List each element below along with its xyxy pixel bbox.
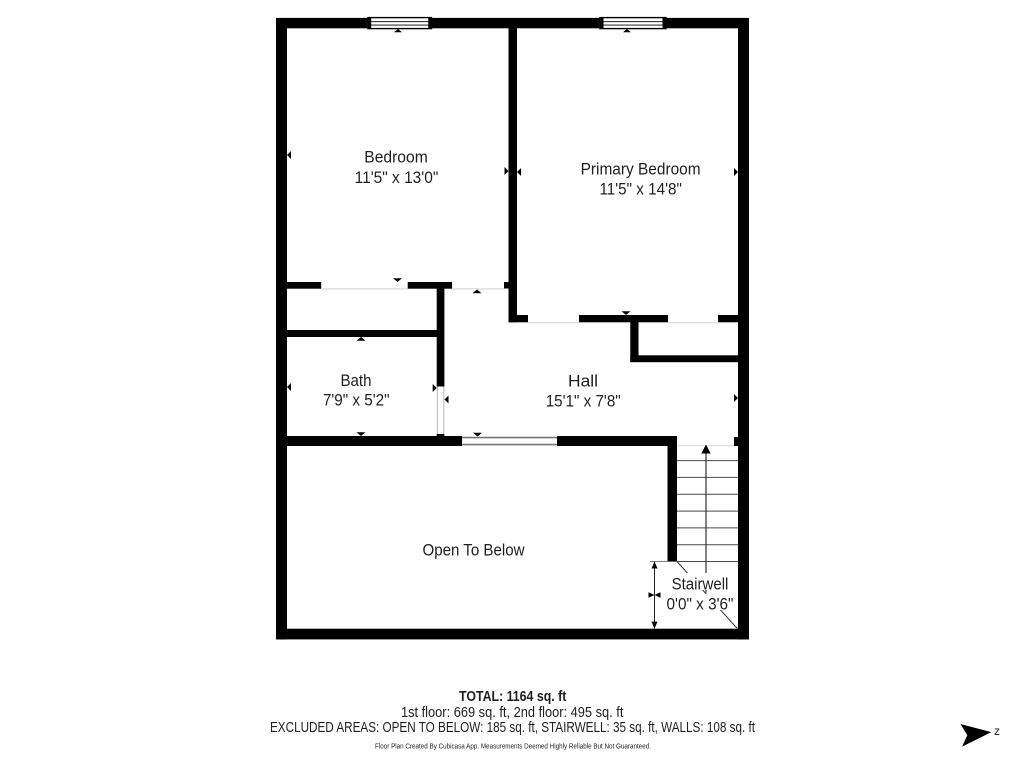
svg-text:11'5" x 13'0": 11'5" x 13'0" [355,169,439,187]
svg-text:Primary Bedroom: Primary Bedroom [581,161,701,179]
svg-text:z: z [994,724,1000,738]
svg-text:Open To Below: Open To Below [423,542,525,560]
svg-text:0'0" x 3'6": 0'0" x 3'6" [667,596,734,614]
svg-text:Bath: Bath [341,372,372,390]
svg-text:1st floor: 669 sq. ft, 2nd flo: 1st floor: 669 sq. ft, 2nd floor: 495 sq… [401,705,624,721]
svg-text:TOTAL: 1164 sq. ft: TOTAL: 1164 sq. ft [459,689,566,705]
svg-text:Stairwell: Stairwell [672,576,729,594]
svg-text:11'5" x 14'8": 11'5" x 14'8" [599,181,682,199]
svg-text:EXCLUDED AREAS: OPEN TO BELOW:: EXCLUDED AREAS: OPEN TO BELOW: 185 sq. f… [270,720,755,736]
svg-text:15'1" x 7'8": 15'1" x 7'8" [546,393,621,411]
svg-text:Hall: Hall [568,373,598,391]
svg-text:Floor Plan Created By Cubicasa: Floor Plan Created By Cubicasa App. Meas… [375,744,651,751]
svg-text:Bedroom: Bedroom [364,149,428,167]
svg-text:7'9" x 5'2": 7'9" x 5'2" [323,392,390,410]
